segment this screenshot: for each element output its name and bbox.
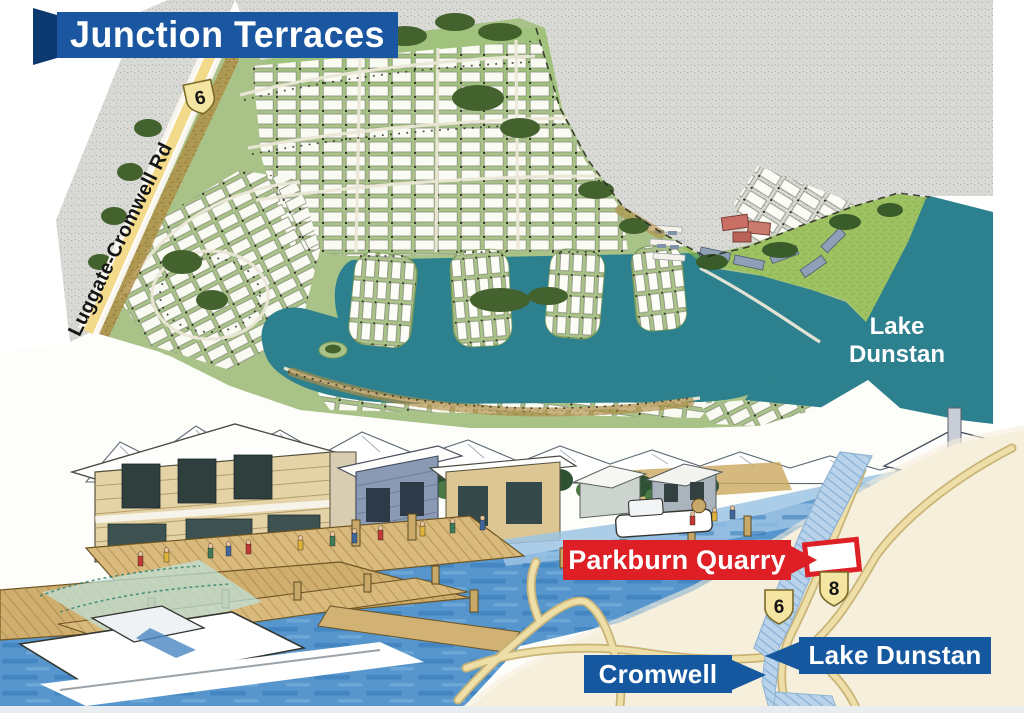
- lake-label-line2: Dunstan: [849, 341, 945, 368]
- right-margin: [993, 0, 1024, 442]
- title-banner: Junction Terraces: [33, 8, 398, 65]
- shield-6-number: 6: [774, 597, 785, 618]
- quarry-site-marker: [805, 539, 860, 574]
- map-canvas: 6 Luggate-Cromwell Rd Lake Dunstan: [0, 0, 1024, 713]
- quarry-label-text: Parkburn Quarry: [568, 545, 786, 575]
- cromwell-text: Cromwell: [599, 659, 718, 689]
- lake-label-line1: Lake: [870, 313, 925, 340]
- shield-8-number: 8: [829, 579, 840, 600]
- junction-terraces-map: 6 Luggate-Cromwell Rd Lake Dunstan: [0, 0, 1024, 713]
- parkburn-quarry-label: Parkburn Quarry: [563, 540, 817, 580]
- lake-dunstan-inset-label: Lake Dunstan: [765, 637, 991, 674]
- bottom-strip: [0, 706, 1024, 713]
- banner-title: Junction Terraces: [70, 14, 385, 55]
- lake-inset-text: Lake Dunstan: [809, 640, 982, 670]
